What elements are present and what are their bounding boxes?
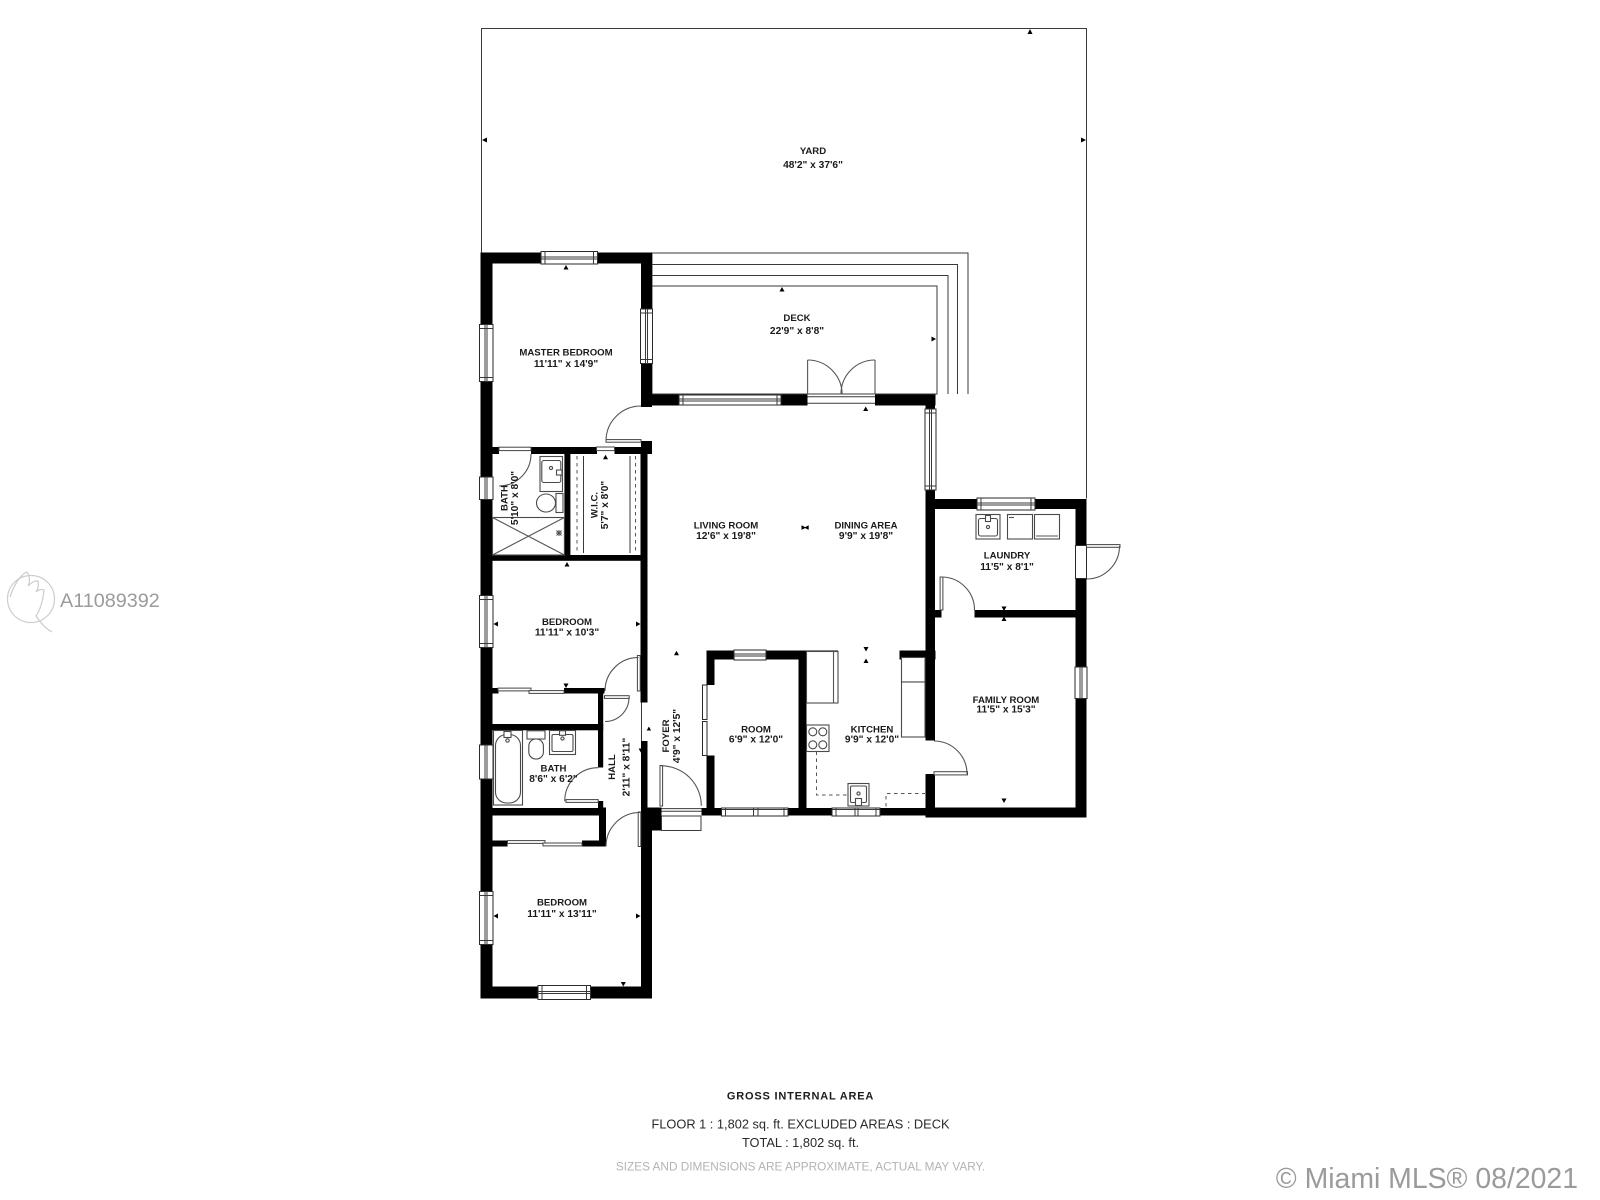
svg-text:FLOOR 1 : 1,802 sq. ft. EXCLUD: FLOOR 1 : 1,802 sq. ft. EXCLUDED AREAS :… <box>652 1117 950 1132</box>
svg-text:2'11" x 8'11": 2'11" x 8'11" <box>621 737 632 796</box>
svg-text:11'5" x 8'1": 11'5" x 8'1" <box>980 562 1034 573</box>
svg-text:W.I.C.: W.I.C. <box>589 492 600 518</box>
svg-text:12'6" x 19'8": 12'6" x 19'8" <box>696 531 756 542</box>
svg-text:BATH: BATH <box>541 763 567 774</box>
svg-text:A11089392: A11089392 <box>60 590 160 612</box>
svg-text:BEDROOM: BEDROOM <box>537 898 587 909</box>
svg-text:MASTER BEDROOM: MASTER BEDROOM <box>519 347 612 358</box>
svg-text:YARD: YARD <box>800 146 826 157</box>
svg-text:LAUNDRY: LAUNDRY <box>984 551 1031 562</box>
svg-text:BEDROOM: BEDROOM <box>542 617 592 628</box>
svg-text:TOTAL : 1,802 sq. ft.: TOTAL : 1,802 sq. ft. <box>742 1135 859 1150</box>
svg-text:BATH: BATH <box>499 485 510 511</box>
svg-text:6'9" x 12'0": 6'9" x 12'0" <box>729 734 783 745</box>
svg-text:9'9" x 19'8": 9'9" x 19'8" <box>839 531 893 542</box>
svg-text:HALL: HALL <box>607 754 618 780</box>
svg-text:© Miami MLS® 08/2021: © Miami MLS® 08/2021 <box>1276 1163 1578 1195</box>
svg-text:11'11" x 14'9": 11'11" x 14'9" <box>534 359 599 370</box>
svg-text:DECK: DECK <box>783 313 810 324</box>
svg-text:FOYER: FOYER <box>661 719 672 752</box>
svg-text:5'10" x 8'0": 5'10" x 8'0" <box>510 471 521 525</box>
svg-text:SIZES AND DIMENSIONS ARE APPRO: SIZES AND DIMENSIONS ARE APPROXIMATE, AC… <box>616 1160 985 1174</box>
svg-text:GROSS INTERNAL AREA: GROSS INTERNAL AREA <box>727 1091 874 1103</box>
svg-text:22'9" x 8'8": 22'9" x 8'8" <box>770 326 824 337</box>
svg-text:9'9" x 12'0": 9'9" x 12'0" <box>845 734 899 745</box>
svg-text:11'11" x 13'11": 11'11" x 13'11" <box>527 909 597 920</box>
svg-text:11'5" x 15'3": 11'5" x 15'3" <box>976 705 1035 716</box>
svg-text:4'9" x 12'5": 4'9" x 12'5" <box>672 709 683 763</box>
svg-text:11'11" x 10'3": 11'11" x 10'3" <box>535 628 600 639</box>
svg-text:48'2" x 37'6": 48'2" x 37'6" <box>783 160 843 171</box>
svg-text:5'7" x 8'0": 5'7" x 8'0" <box>600 481 611 530</box>
svg-text:8'6" x 6'2": 8'6" x 6'2" <box>529 774 578 785</box>
